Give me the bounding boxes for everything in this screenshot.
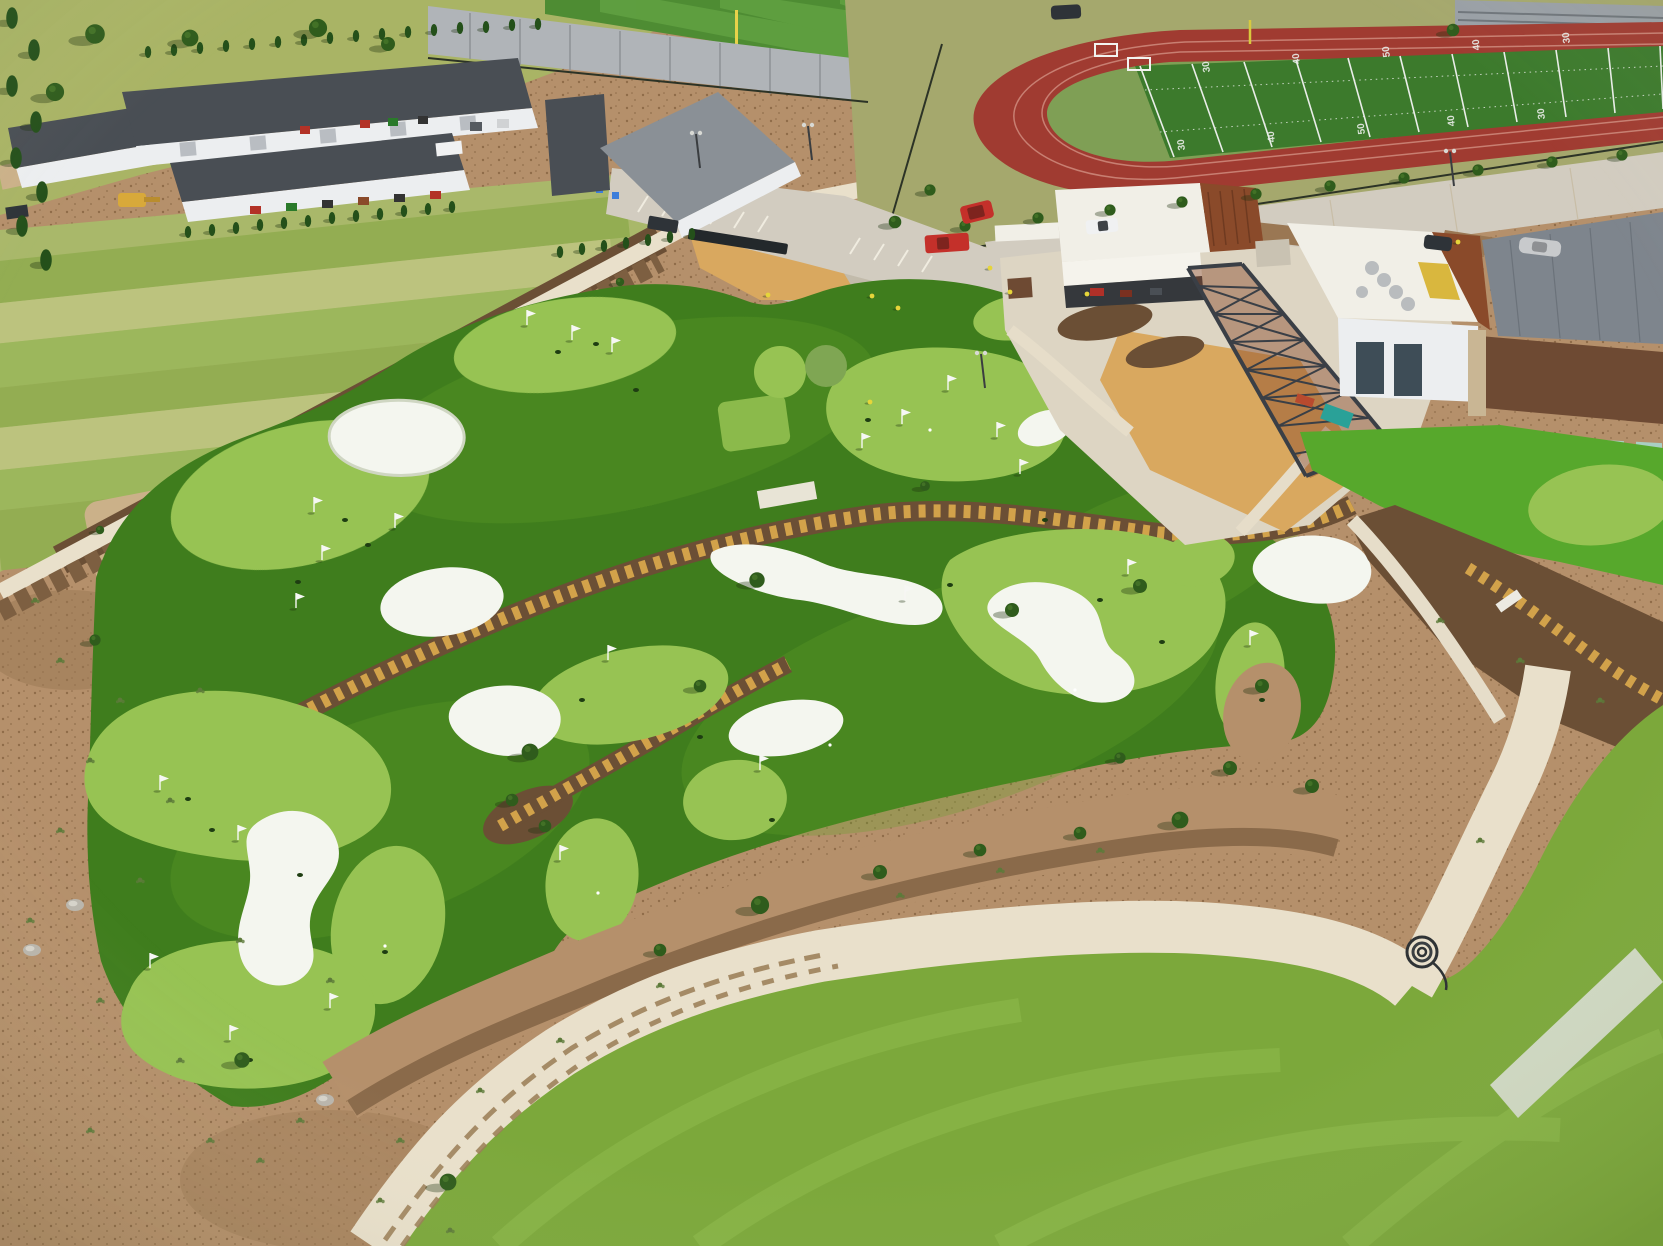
aerial-photo-stage: 3040504030 3040504030 xyxy=(0,0,1663,1246)
photo-vignette xyxy=(0,0,1663,1246)
aerial-scene: 3040504030 3040504030 xyxy=(0,0,1663,1246)
